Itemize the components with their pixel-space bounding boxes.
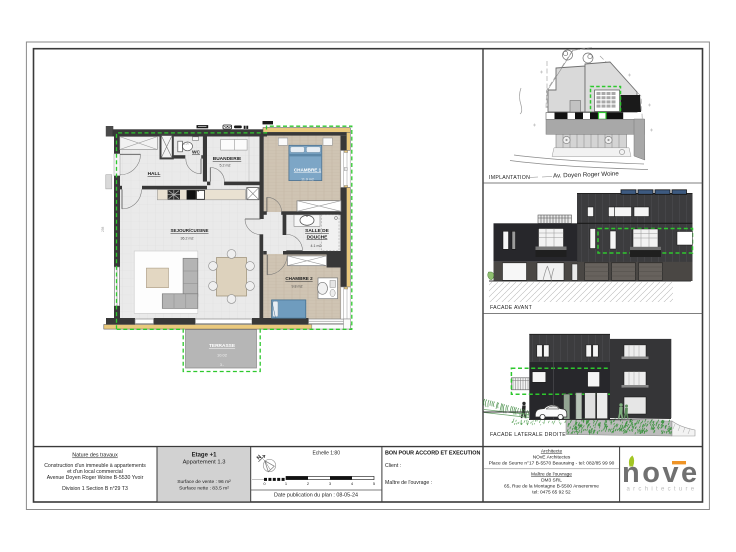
svg-text:11.9 m2: 11.9 m2 [301, 178, 314, 182]
svg-text:10.02: 10.02 [217, 353, 228, 358]
svg-text:SEJOUR/CUISINE: SEJOUR/CUISINE [170, 228, 208, 233]
svg-text:5.2 m2: 5.2 m2 [220, 164, 231, 168]
svg-text:3.-: 3.- [220, 363, 224, 367]
svg-text:DOUCHE: DOUCHE [307, 235, 329, 241]
svg-text:architecture: architecture [627, 487, 698, 493]
svg-text:HALL: HALL [148, 171, 161, 177]
svg-text:Avenue Doyen Roger Woine B-553: Avenue Doyen Roger Woine B-5530 Yvoir [47, 475, 144, 481]
svg-text:BON POUR ACCORD ET EXECUTION: BON POUR ACCORD ET EXECUTION [385, 451, 480, 457]
svg-text:Etage +1: Etage +1 [192, 453, 218, 459]
svg-text:DM3 SRL: DM3 SRL [541, 478, 562, 484]
svg-text:Surface nette : 83.5 m²: Surface nette : 83.5 m² [179, 486, 229, 492]
svg-text:FACADE LATERALE DROITE: FACADE LATERALE DROITE [490, 432, 566, 438]
svg-text:4.1 m2: 4.1 m2 [311, 244, 322, 248]
svg-text:BUANDERIE: BUANDERIE [213, 156, 242, 162]
svg-text:Date publication du plan : 08-: Date publication du plan : 08-05-24 [274, 493, 358, 499]
svg-text:SALLE DE: SALLE DE [305, 228, 330, 234]
svg-text:Maître de l'ouvrage :: Maître de l'ouvrage : [385, 480, 432, 486]
svg-text:CHAMBRE 2: CHAMBRE 2 [285, 276, 313, 281]
svg-text:150: 150 [184, 142, 190, 146]
svg-text:tel: 0475 65 92 52: tel: 0475 65 92 52 [532, 490, 571, 496]
svg-text:WC: WC [192, 150, 201, 156]
svg-text:Nature des travaux: Nature des travaux [72, 453, 118, 459]
svg-text:9.8 m2: 9.8 m2 [292, 285, 303, 289]
svg-text:Architecte: Architecte [541, 449, 563, 455]
svg-text:Place de Seurre n°17 B-5570 Be: Place de Seurre n°17 B-5570 Beauraing - … [489, 461, 615, 467]
svg-text:258: 258 [101, 226, 105, 232]
svg-text:36.2 m2: 36.2 m2 [181, 237, 194, 241]
svg-text:65, Rue de la Montagne B-5500: 65, Rue de la Montagne B-5500 Anseremme [504, 484, 599, 490]
svg-text:IMPLANTATION: IMPLANTATION [489, 175, 530, 181]
svg-text:FACADE AVANT: FACADE AVANT [490, 305, 533, 311]
svg-text:Appartement 1.3: Appartement 1.3 [183, 460, 226, 466]
svg-text:CHAMBRE 1: CHAMBRE 1 [294, 168, 322, 173]
svg-text:Client :: Client : [385, 463, 401, 469]
svg-text:Maître de l'ouvrage: Maître de l'ouvrage [531, 472, 572, 478]
svg-text:TERRASSE: TERRASSE [209, 343, 236, 349]
svg-text:Division 1 Section B n°29 T3: Division 1 Section B n°29 T3 [62, 486, 128, 492]
svg-text:NOvE Architectes: NOvE Architectes [533, 455, 571, 461]
svg-text:Surface de vente : 96 m²: Surface de vente : 96 m² [177, 479, 231, 485]
svg-text:Echelle 1:80: Echelle 1:80 [312, 451, 340, 457]
